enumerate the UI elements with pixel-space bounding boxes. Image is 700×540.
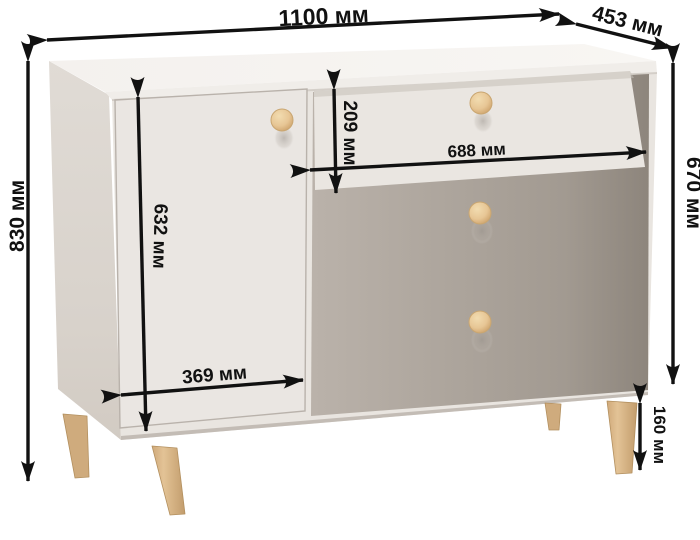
svg-text:830 мм: 830 мм: [6, 180, 29, 252]
svg-text:670 мм: 670 мм: [682, 157, 700, 229]
svg-text:632 мм: 632 мм: [148, 203, 171, 269]
svg-text:688 мм: 688 мм: [447, 139, 506, 161]
svg-text:1100 мм: 1100 мм: [278, 1, 370, 32]
svg-text:209 мм: 209 мм: [339, 100, 360, 165]
svg-text:160 мм: 160 мм: [650, 406, 669, 464]
